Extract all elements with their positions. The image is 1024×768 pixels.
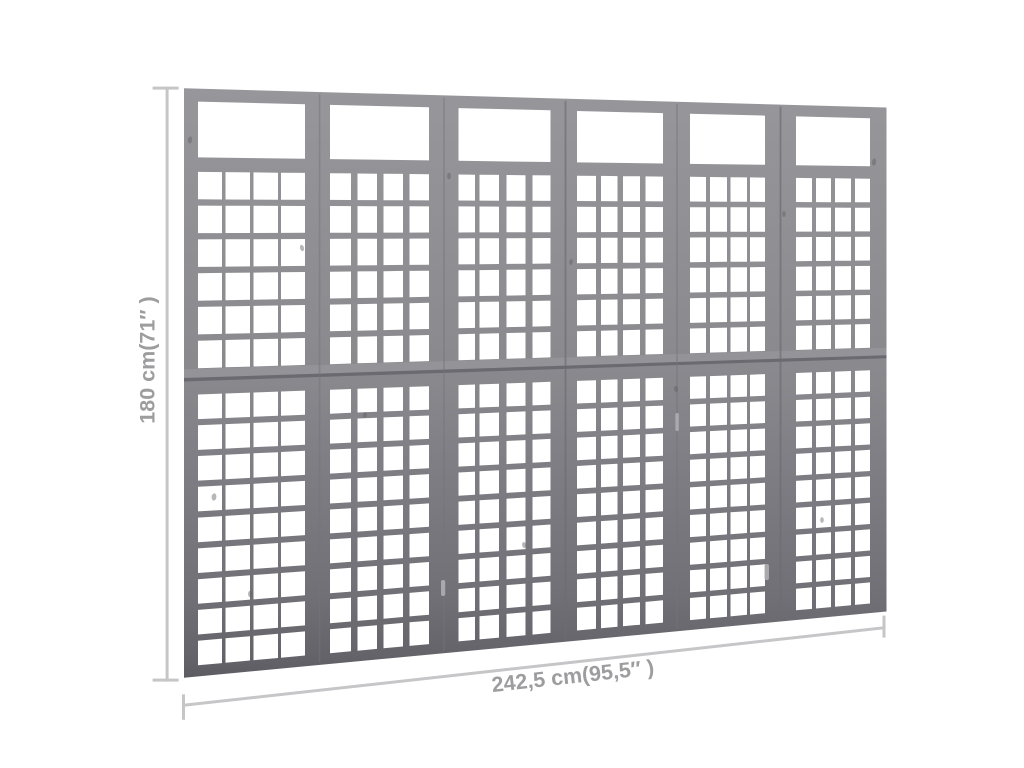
svg-text:180 cm(71″ ): 180 cm(71″ ) — [136, 296, 160, 423]
